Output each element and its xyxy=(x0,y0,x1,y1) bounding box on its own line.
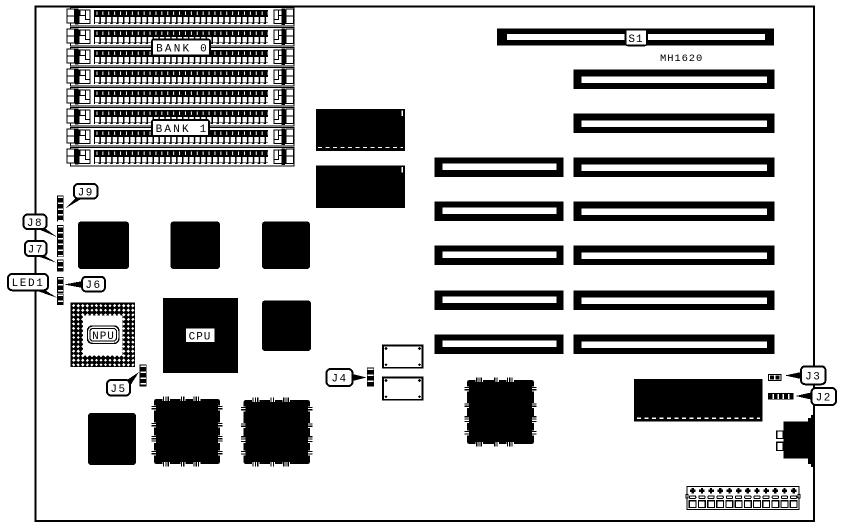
svg-text:CPU: CPU xyxy=(189,331,212,343)
svg-text:J7: J7 xyxy=(28,245,44,257)
svg-text:J9: J9 xyxy=(78,187,94,199)
svg-text:S1: S1 xyxy=(628,34,643,46)
svg-text:J4: J4 xyxy=(331,374,347,386)
svg-text:J6: J6 xyxy=(85,280,101,292)
svg-text:J3: J3 xyxy=(805,371,821,383)
svg-text:J5: J5 xyxy=(110,384,126,396)
svg-text:NPU: NPU xyxy=(92,331,115,343)
svg-text:J8: J8 xyxy=(27,218,43,230)
svg-text:BANK 0: BANK 0 xyxy=(156,44,209,56)
svg-text:J2: J2 xyxy=(816,393,832,405)
svg-text:LED1: LED1 xyxy=(12,278,45,290)
svg-text:MH1620: MH1620 xyxy=(660,53,703,65)
svg-text:BANK 1: BANK 1 xyxy=(156,124,209,136)
